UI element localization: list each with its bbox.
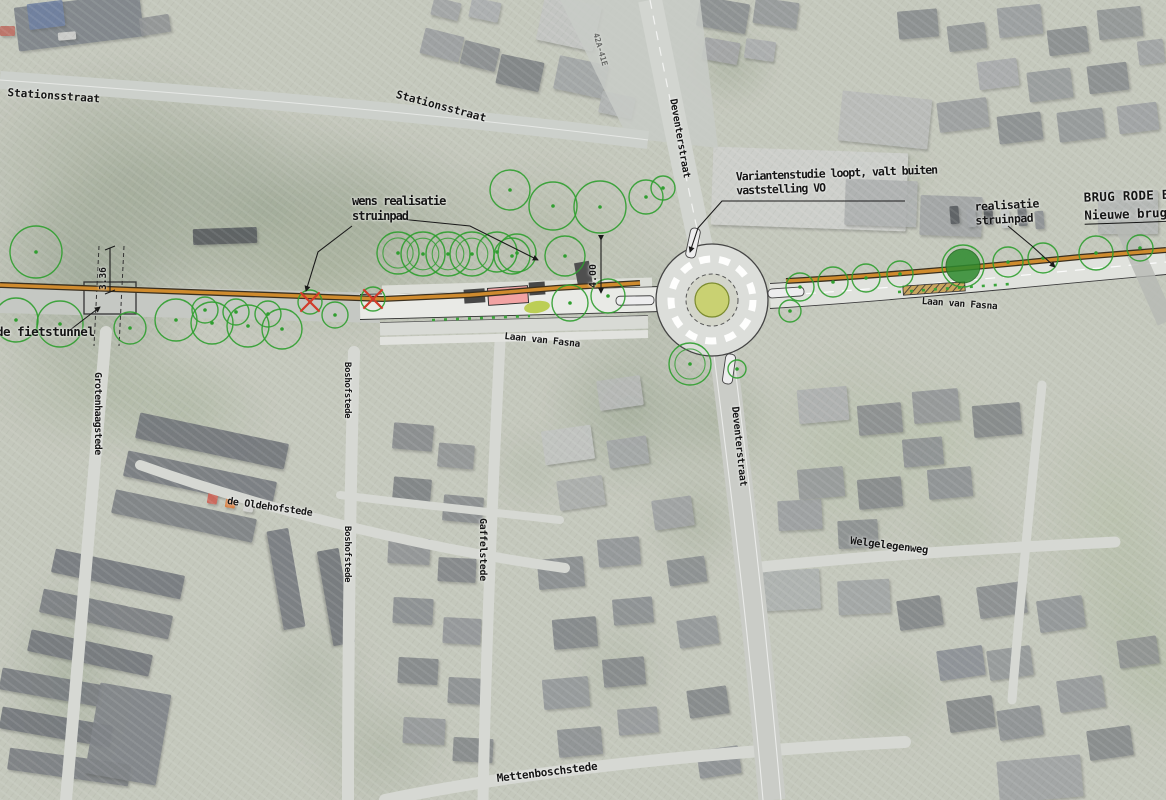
annotation-brug-title: BRUG RODE BEE [1083,186,1166,205]
dimension-path-width: 4.00 [588,264,601,288]
annotation-wens-line2: struinpad [352,209,445,224]
dimension-tunnel-width: 3.36 [98,267,110,290]
annotation-wens-struinpad: wens realisatie struinpad [352,194,445,224]
street-label-gaffelstede: Gaffelstede [476,518,489,581]
annotation-brug-rode-beek: BRUG RODE BEE Nieuwe brug [1083,186,1166,223]
annotation-brug-subtitle: Nieuwe brug [1084,205,1166,225]
annotation-fietstunnel: de fietstunnel [0,324,94,340]
street-label-boshofstede-2: Boshofstede [341,526,352,582]
annotation-wens-line1: wens realisatie [352,194,445,209]
street-label-grotenhaagstede: Grotenhaagstede [91,372,104,455]
plan-linework [0,0,1166,800]
street-label-boshofstede-1: Boshofstede [341,362,352,418]
annotation-realisatie-struinpad: realisatie struinpad [974,196,1040,228]
design-plan-map[interactable]: Stationsstraat Stationsstraat 42A-41E we… [0,0,1166,800]
